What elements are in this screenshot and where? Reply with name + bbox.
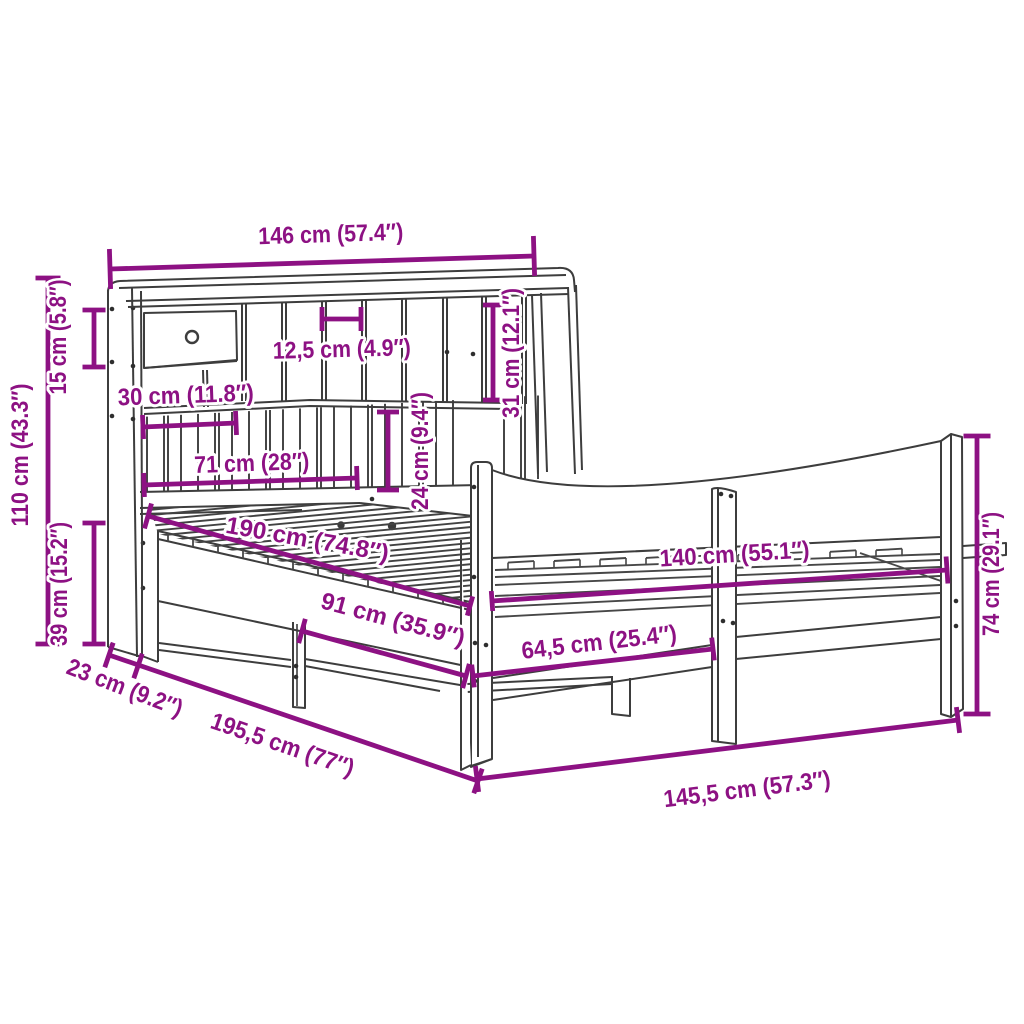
svg-text:15 cm (5.8″): 15 cm (5.8″) <box>45 280 72 395</box>
svg-text:24 cm (9.4″): 24 cm (9.4″) <box>407 392 434 510</box>
svg-text:110 cm (43.3″): 110 cm (43.3″) <box>7 384 34 527</box>
svg-text:39 cm (15.2″): 39 cm (15.2″) <box>46 522 73 646</box>
svg-text:74 cm (29.1″): 74 cm (29.1″) <box>978 512 1005 636</box>
svg-text:12,5 cm (4.9″): 12,5 cm (4.9″) <box>272 334 411 365</box>
svg-text:71 cm (28″): 71 cm (28″) <box>194 448 310 479</box>
svg-text:30 cm (11.8″): 30 cm (11.8″) <box>117 380 254 412</box>
svg-text:31 cm (12.1″): 31 cm (12.1″) <box>498 288 525 418</box>
svg-text:146 cm (57.4″): 146 cm (57.4″) <box>258 219 404 251</box>
